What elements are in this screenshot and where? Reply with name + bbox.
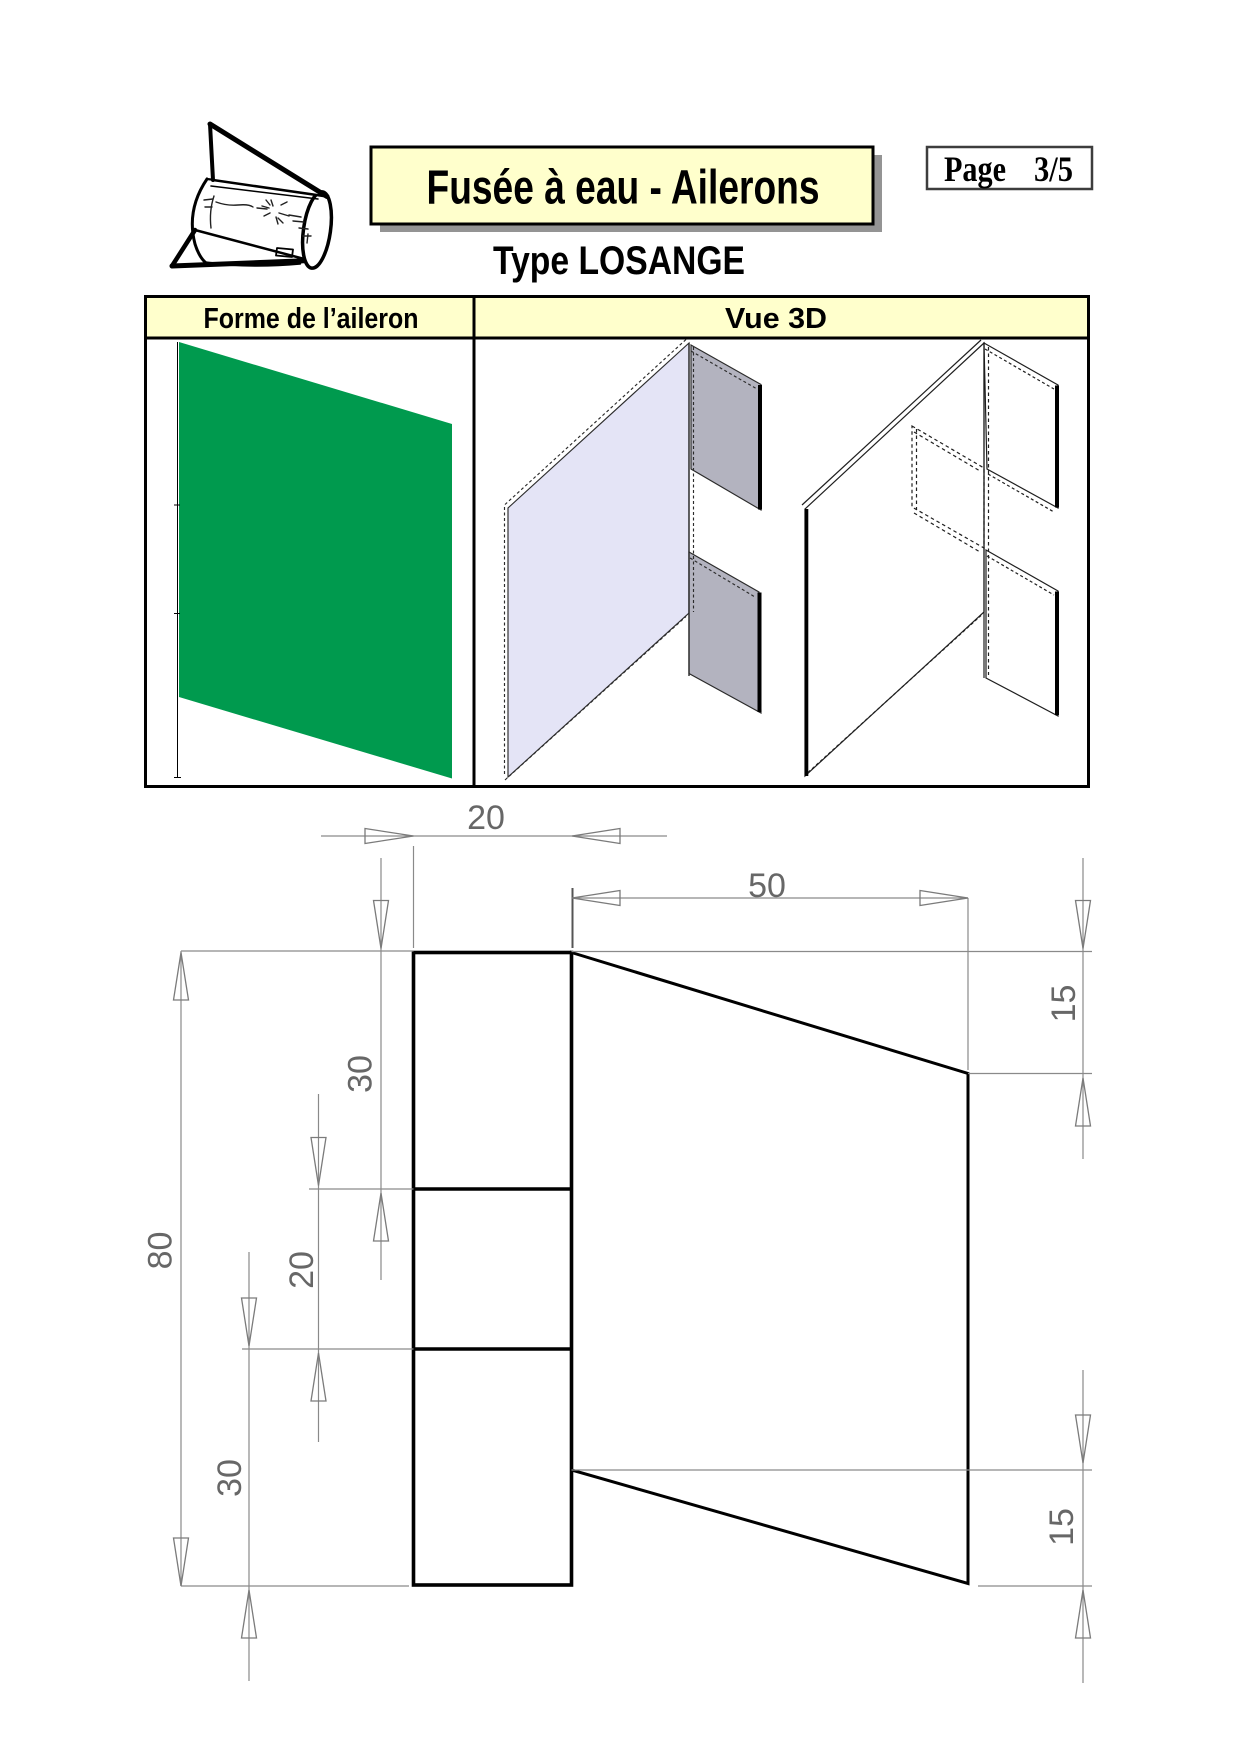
- svg-text:15: 15: [1045, 985, 1083, 1023]
- svg-text:50: 50: [748, 867, 786, 905]
- svg-text:20: 20: [467, 799, 505, 837]
- svg-text:3/5: 3/5: [1034, 149, 1073, 189]
- svg-text:30: 30: [211, 1459, 249, 1497]
- svg-text:Vue 3D: Vue 3D: [725, 303, 827, 335]
- svg-text:15: 15: [1043, 1508, 1081, 1546]
- svg-text:30: 30: [342, 1055, 380, 1093]
- svg-text:Forme de l’aileron: Forme de l’aileron: [204, 303, 419, 335]
- svg-text:80: 80: [142, 1232, 180, 1270]
- svg-text:Page: Page: [944, 149, 1006, 189]
- svg-text:20: 20: [283, 1251, 321, 1289]
- svg-text:Type LOSANGE: Type LOSANGE: [493, 239, 745, 283]
- svg-text:Fusée à eau - Ailerons: Fusée à eau - Ailerons: [427, 162, 820, 215]
